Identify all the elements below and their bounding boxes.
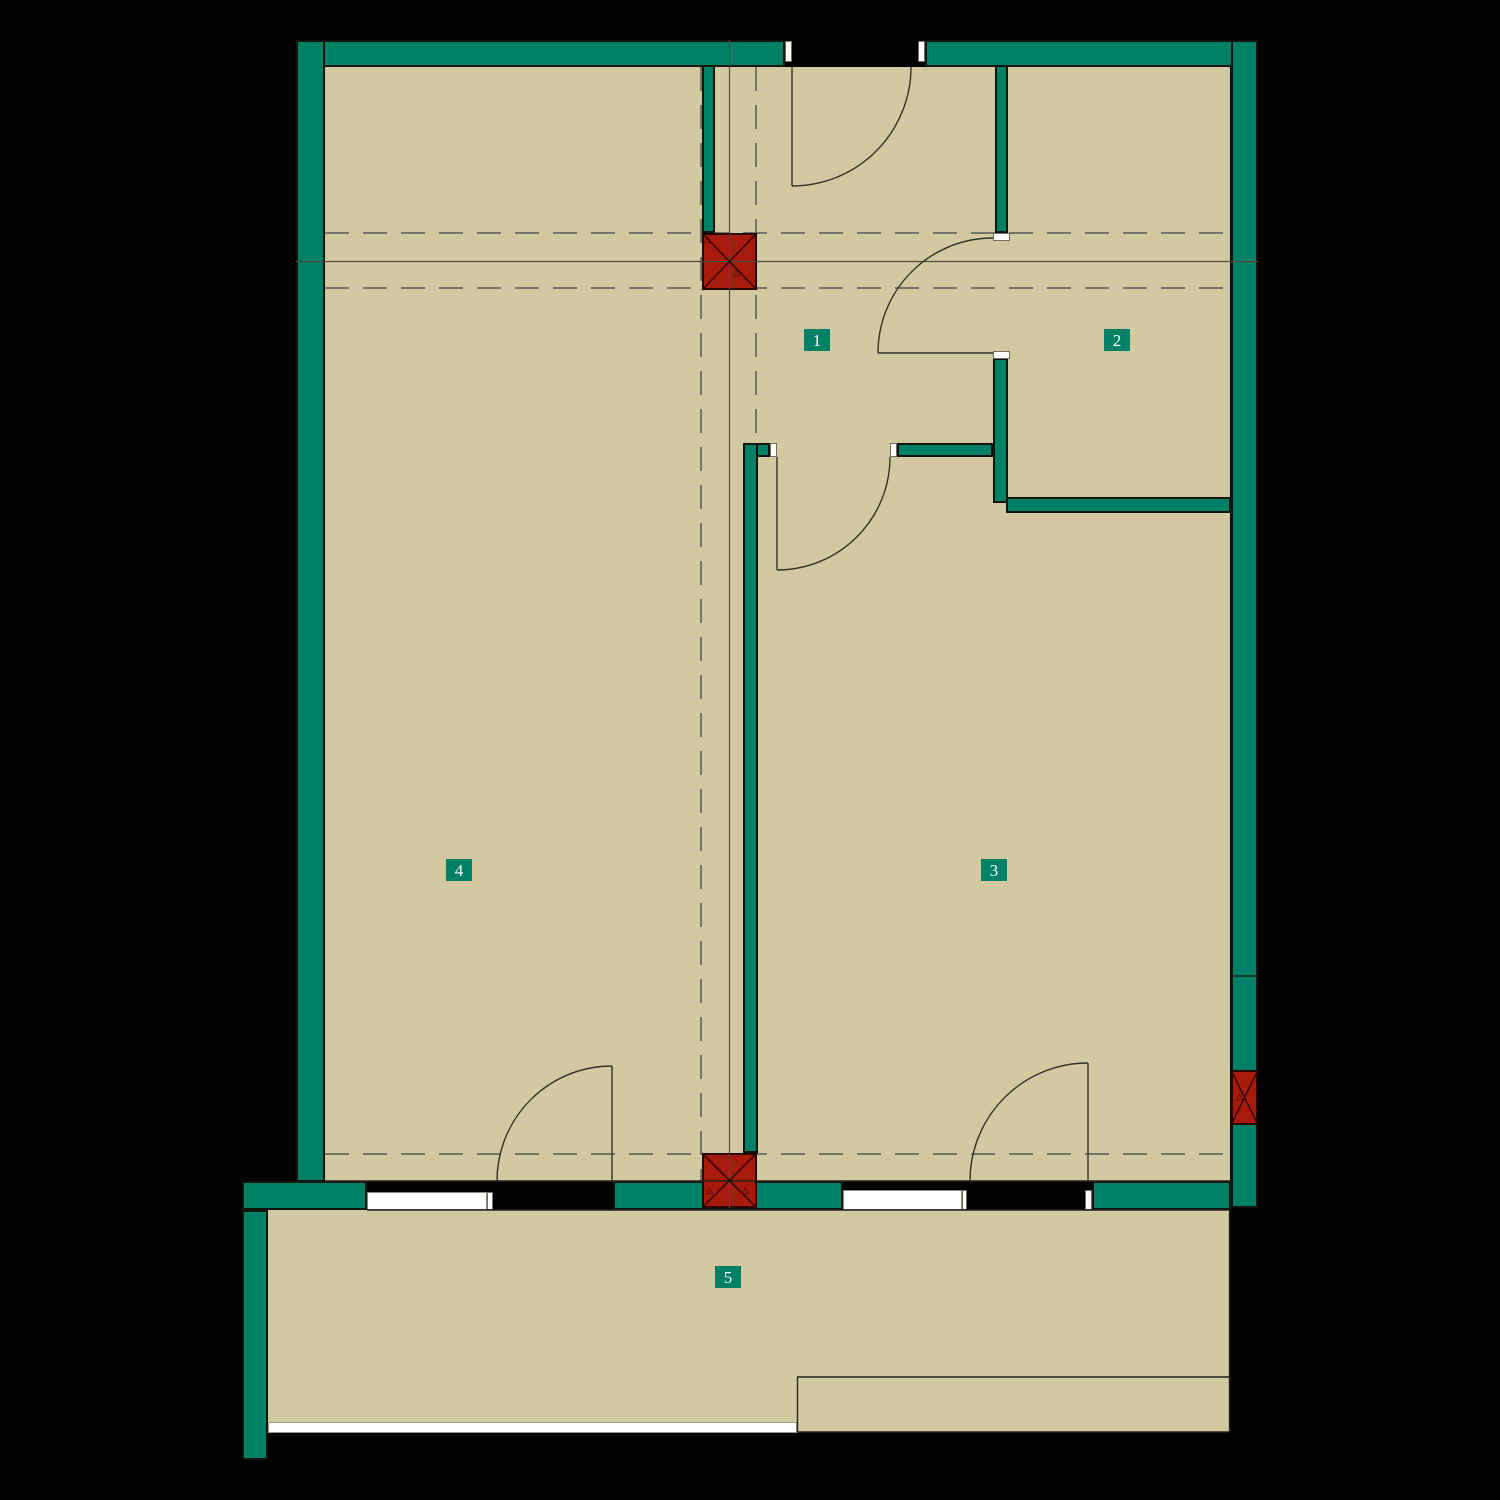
floor-plan: △ △ △ △ △: [0, 0, 1500, 1500]
slab-edge-lines: [325, 976, 1258, 1432]
entrance-door-swing: [792, 67, 911, 186]
room2-door-swing: [878, 238, 993, 353]
room-label-5: 5: [715, 1266, 741, 1288]
column-cross-marks: [702, 233, 1258, 1208]
room-label-3: 3: [981, 859, 1007, 881]
grid-axis-lines: [296, 40, 1258, 1208]
linework-overlay: [0, 0, 1500, 1500]
room-label-2: 2: [1104, 329, 1130, 351]
room4-balcony-door-swing: [497, 1066, 612, 1181]
room3-door-swing: [777, 457, 890, 570]
room3-balcony-door-swing: [970, 1063, 1088, 1181]
room-label-1: 1: [804, 329, 830, 351]
room-label-4: 4: [446, 859, 472, 881]
